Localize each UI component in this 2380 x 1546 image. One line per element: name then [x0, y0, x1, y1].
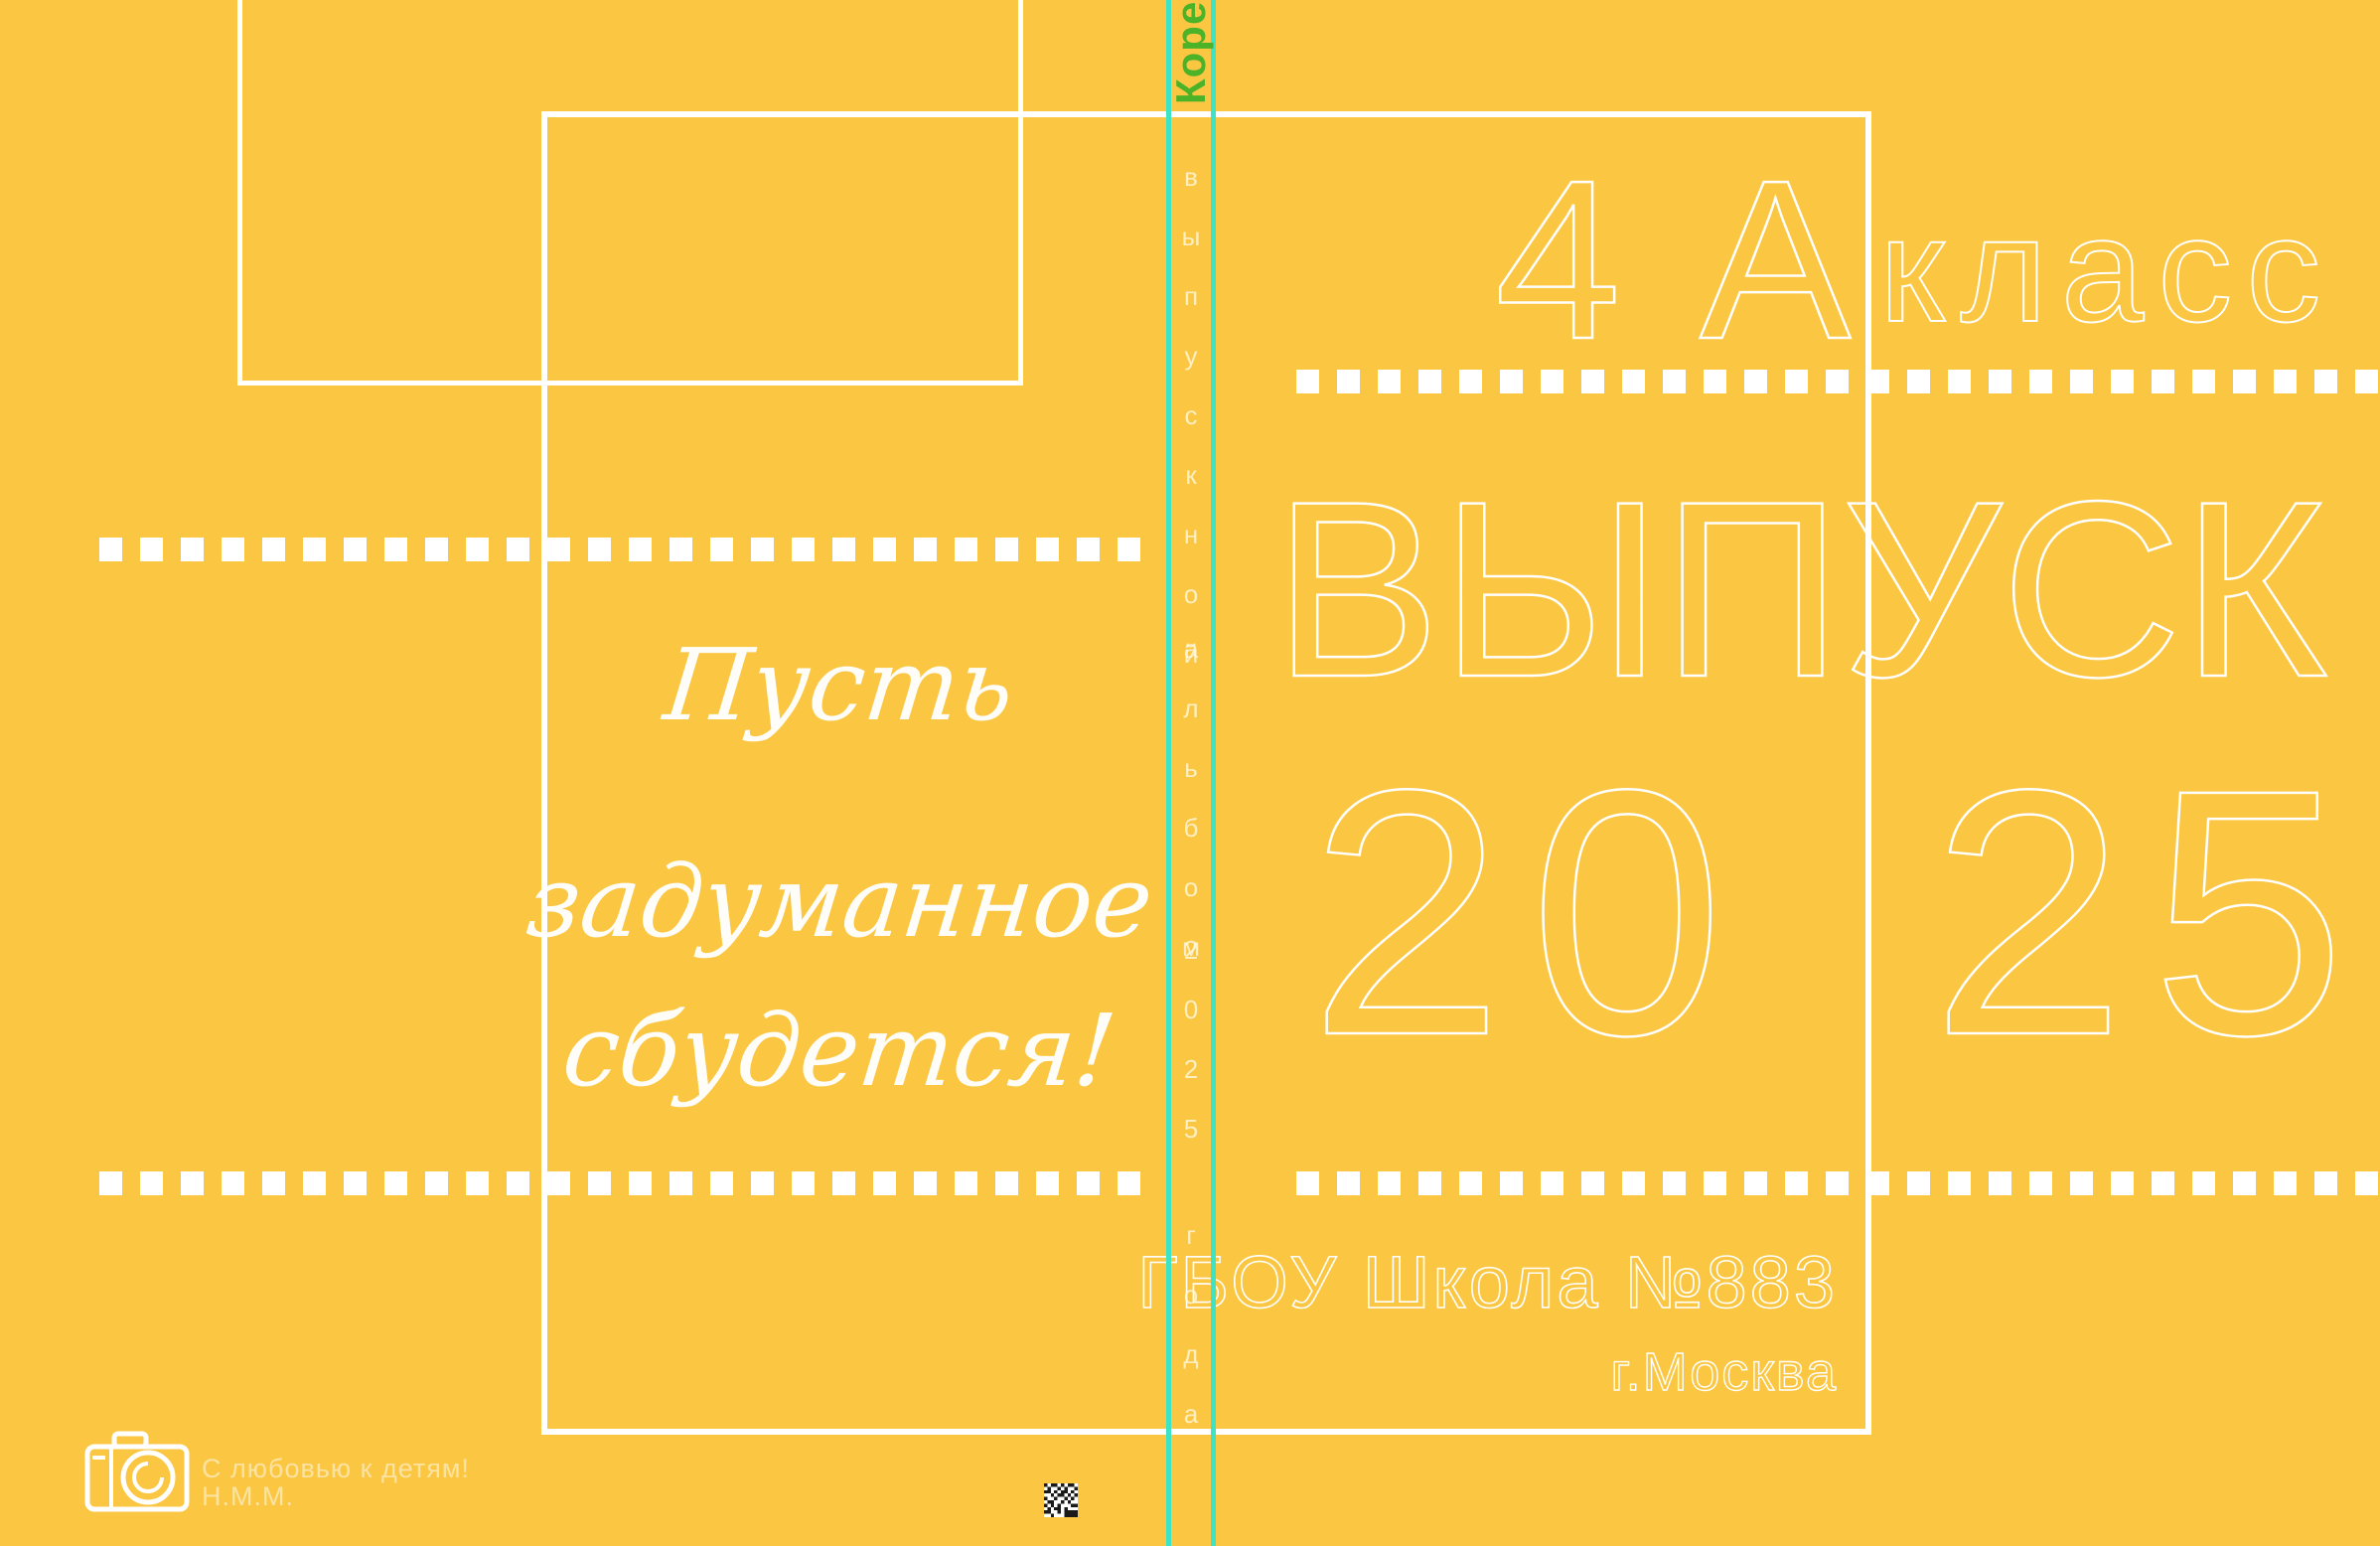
album-cover-proof: Пусть задуманное сбудется! 4 А класс ВЫП… [0, 0, 2380, 1546]
spine-word-vypusknoy: выпускной [1177, 162, 1205, 698]
credit-line-1: С любовью к детям! [202, 1455, 470, 1482]
credit-line-2: Н.М.М. [202, 1482, 294, 1510]
spine-guide-line-left [1166, 0, 1171, 1546]
quote-line-3: сбудется! [412, 1002, 1267, 1101]
year-left-digits: 20 [1309, 737, 1750, 1087]
city-name: г.Москва [1611, 1345, 1838, 1399]
cover-title: ВЫПУСК [1273, 465, 2327, 715]
datamatrix-code [1044, 1483, 1078, 1517]
dotted-row-back-bottom [99, 1171, 1142, 1195]
school-name: ГБОУ Школа №883 [1137, 1246, 1838, 1319]
camera-icon [84, 1431, 192, 1514]
spine-word-2025: 2025 [1177, 935, 1205, 1173]
quote-line-1: Пусть [412, 636, 1267, 735]
dotted-row-front-bottom [1296, 1171, 2380, 1195]
class-word: класс [1879, 195, 2334, 344]
spine-guide-line-right [1211, 0, 1216, 1546]
dotted-row-back-top [99, 538, 1142, 561]
year-right-digits: 25 [1931, 737, 2372, 1087]
class-number: 4 А [1495, 147, 1859, 374]
quote-line-2: задуманное [412, 852, 1267, 952]
spine-marker-label: Корешок [1170, 0, 1212, 104]
spine-word-goda: года [1177, 1220, 1205, 1459]
